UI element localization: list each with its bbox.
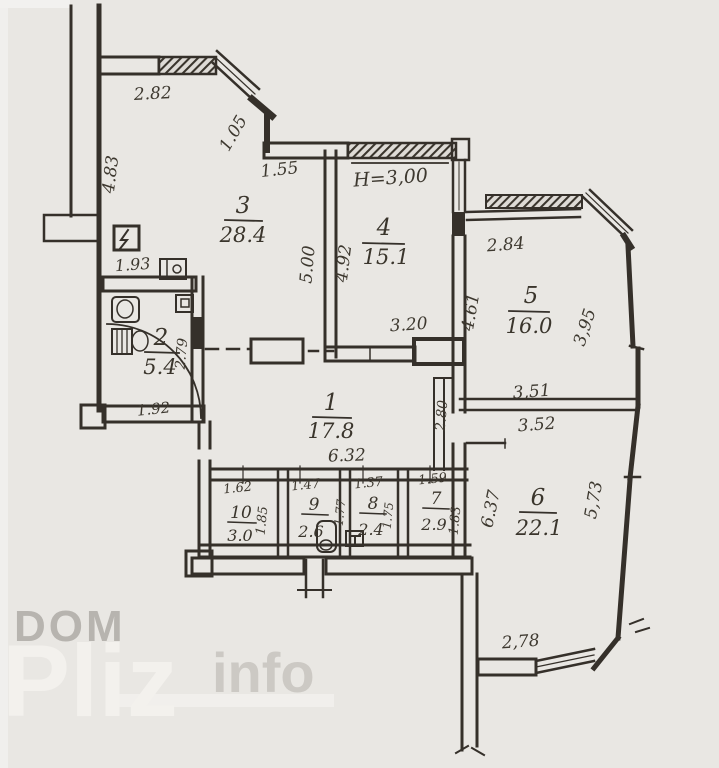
dim-bath-width: 1.93: [114, 254, 151, 275]
room-1-number: 1: [324, 390, 339, 416]
room-2-area: 5.4: [143, 355, 176, 379]
room-4-number: 4: [376, 215, 392, 241]
room-3-area: 28.4: [219, 223, 267, 247]
room-6-area: 22.1: [515, 516, 563, 540]
room-3-number: 3: [236, 193, 251, 219]
dim-r10-right: 1.85: [254, 505, 272, 535]
room-1-area: 17.8: [308, 419, 355, 443]
dim-r1-bottom: 6.32: [328, 445, 367, 466]
dim-r8-top: 1.37: [353, 474, 384, 492]
dim-r5-top: 2.84: [485, 234, 525, 257]
room-4-area: 15.1: [363, 245, 410, 269]
room-10-area: 3.0: [227, 526, 252, 545]
room-8-number: 8: [368, 494, 379, 514]
window-room3-top: [159, 57, 216, 74]
dim-r8-right: 1.75: [380, 502, 397, 530]
dim-r6-top: 3.52: [517, 414, 556, 437]
dim-r4-bottom: 3.20: [389, 314, 428, 337]
floor-plan-svg: DOM Pliz info: [0, 0, 719, 768]
floor-plan-scan: DOM Pliz info: [0, 0, 719, 768]
room-7-area: 2.9: [420, 515, 446, 534]
scan-edge-top: [0, 0, 70, 8]
room-7-number: 7: [431, 489, 442, 509]
room-5-area: 16.0: [506, 314, 553, 338]
dim-bath-height: 2.79: [173, 337, 192, 371]
room-6-number: 6: [531, 485, 546, 511]
dim-r5-bottom: 3,51: [512, 381, 551, 404]
watermark-pliz: Pliz: [2, 624, 178, 738]
room-5-number: 5: [524, 283, 539, 309]
dim-r7-top: 1.59: [417, 471, 447, 489]
watermark-info: info: [212, 641, 315, 704]
room-9-number: 9: [309, 495, 320, 515]
room-2-number: 2: [153, 325, 169, 351]
room-9-area: 2.6: [297, 522, 323, 541]
dim-top-left: 2.82: [132, 83, 172, 105]
dim-r4-left-out: 5.00: [296, 245, 319, 285]
dim-top-mid: 1.55: [260, 158, 300, 182]
window-room4-top: [348, 143, 456, 158]
dim-r6-bottom: 2,78: [500, 631, 540, 654]
dim-r1-right: 2.80: [433, 399, 452, 433]
dim-bath-bottom: 1.92: [136, 398, 171, 419]
dim-r9-top: 1.47: [290, 476, 321, 494]
dim-r10-top: 1.62: [222, 480, 252, 498]
dim-r7-right: 1.83: [447, 505, 465, 535]
dim-r9-right: 1.77: [332, 498, 349, 526]
room-10-number: 10: [230, 503, 252, 523]
